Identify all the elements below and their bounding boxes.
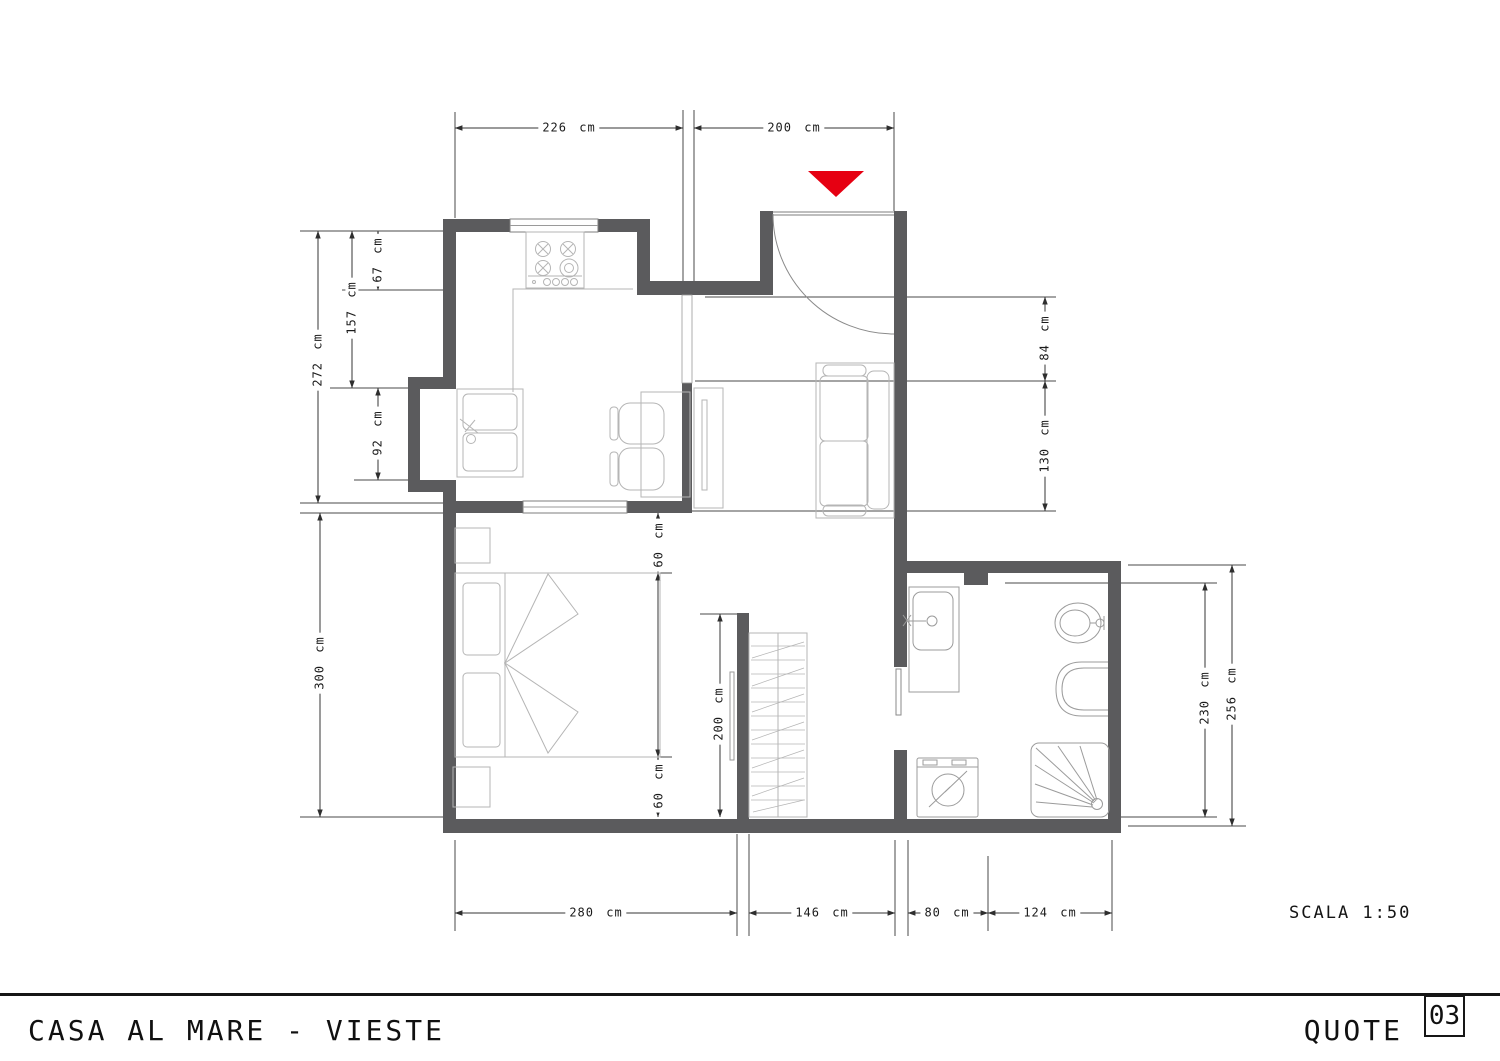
project-title: CASA AL MARE - VIESTE [28, 1014, 445, 1047]
dim-label-bottom-80: 80 cm [920, 906, 973, 919]
wall-niche-left [408, 377, 420, 492]
dim-label-left-272: 272 cm [311, 329, 324, 390]
chair-2 [610, 448, 664, 490]
dim-label-left-157: 157 cm [345, 277, 358, 338]
dim-label-right-130: 130 cm [1038, 415, 1051, 476]
kitchen-counter-line [513, 289, 633, 392]
scale-label: SCALA 1:50 [1289, 903, 1411, 923]
pillow [463, 673, 500, 747]
entrance-threshold [773, 212, 894, 215]
sheet-number-box: 03 [1424, 995, 1465, 1037]
washing-machine-symbol [917, 758, 978, 817]
floor-plan-sheet: 226 cm 200 cm 272 cm 157 cm 67 cm 92 cm … [0, 0, 1500, 1061]
door-swing-arc [773, 214, 894, 334]
dim-label-top-entrance: 200 cm [763, 121, 824, 134]
walls [408, 211, 1121, 833]
nightstand-bottom [453, 767, 490, 807]
blanket-fold [505, 663, 578, 753]
floor-plan-drawing [0, 0, 1500, 1061]
wall-bath-right [1108, 561, 1121, 833]
kitchen-door-opening [682, 295, 692, 383]
wall-kitchen-right [637, 219, 650, 283]
pillow [463, 583, 500, 655]
bidet-symbol [1055, 603, 1104, 643]
wall-bath-pillar [964, 561, 988, 585]
washbasin-symbol [903, 587, 959, 692]
sofa-symbol [816, 363, 894, 518]
entrance-arrow-icon [808, 171, 864, 197]
dim-label-left-92: 92 cm [371, 406, 384, 459]
dim-label-top-kitchen: 226 cm [538, 121, 599, 134]
dim-label-right-256: 256 cm [1225, 663, 1238, 724]
dim-label-wardrobe-200: 200 cm [712, 683, 725, 744]
dim-label-bottom-280: 280 cm [565, 906, 626, 919]
wall-niche-bottom [408, 480, 456, 492]
wall-left-lower [443, 492, 456, 833]
wall-bath-top [907, 561, 1121, 573]
shower-symbol [1031, 743, 1109, 817]
titleblock-divider [0, 993, 1500, 996]
chair-1 [610, 403, 664, 444]
wall-kitchen-bottom-right [627, 501, 692, 513]
dim-label-right-230: 230 cm [1198, 667, 1211, 728]
dim-label-bed-gap-bottom: 60 cm [652, 759, 665, 812]
wall-wardrobe-partition [737, 613, 749, 819]
sheet-number: 03 [1429, 1001, 1460, 1031]
wall-kitchen-entry-stub [637, 281, 773, 295]
wall-kitchen-left-upper [443, 219, 456, 377]
bath-door-panel [896, 669, 901, 715]
stove-symbol [526, 232, 584, 288]
toilet-symbol [1056, 662, 1108, 716]
wall-right-upper [894, 211, 907, 667]
dim-label-bottom-124: 124 cm [1019, 906, 1080, 919]
dim-label-left-300: 300 cm [313, 632, 326, 693]
blanket-fold [505, 574, 578, 663]
wardrobe-door-panel [730, 672, 734, 760]
kitchen-sink-symbol [457, 389, 523, 477]
wall-kitchen-bottom-left [443, 501, 523, 513]
furniture [453, 232, 894, 817]
tv-unit [694, 388, 723, 508]
window-kitchen-bottom [523, 501, 627, 513]
wall-entrance-jamb [760, 211, 773, 295]
window-kitchen-top [510, 219, 598, 232]
wall-bottom [443, 819, 1121, 833]
double-bed-symbol [455, 573, 660, 757]
nightstand-top [455, 528, 490, 563]
wardrobe-symbol [749, 633, 807, 817]
dim-label-left-67: 67 cm [371, 233, 384, 286]
dim-label-bottom-146: 146 cm [791, 906, 852, 919]
dim-label-bed-gap-top: 60 cm [652, 518, 665, 571]
dim-label-right-84: 84 cm [1038, 311, 1051, 364]
bathroom-fixtures [903, 587, 1109, 817]
sheet-label: QUOTE [1304, 1014, 1403, 1047]
